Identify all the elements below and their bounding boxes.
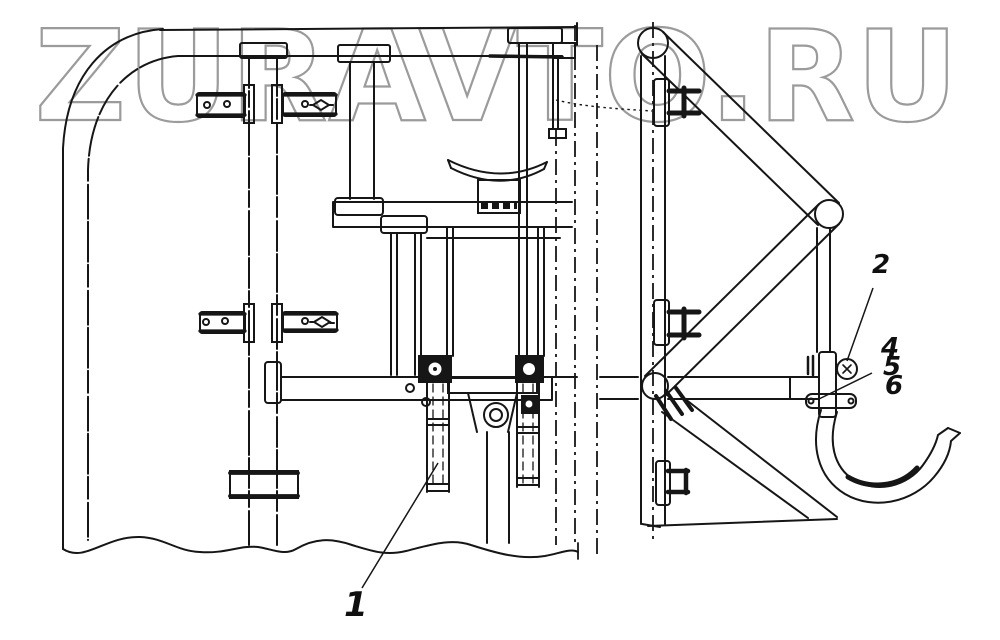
stay-triangle [648, 388, 837, 526]
break-line [63, 537, 578, 557]
mount-bolt [808, 356, 857, 379]
diagram-canvas: ZURAVTO.RU [0, 0, 1000, 640]
watermark-text: ZURAVTO.RU [35, 3, 960, 150]
lower-clamp [230, 471, 298, 498]
post-clamp-lower [656, 461, 688, 505]
diagonal-tube-lower [645, 204, 839, 396]
right-vertical-member [817, 228, 830, 352]
leader-5-6 [819, 373, 872, 399]
parts-diagram-page: ZURAVTO.RU [0, 0, 1000, 640]
spare-wheel-hook [816, 410, 960, 503]
watermark: ZURAVTO.RU [35, 3, 960, 150]
post-clamp-middle [654, 300, 699, 345]
carrier-arm [668, 377, 818, 399]
spare-wheel-saddle [448, 160, 547, 213]
callout-label-1: 1 [344, 588, 368, 622]
leader-1 [362, 463, 438, 588]
middle-cross-bracket [200, 304, 337, 342]
callout-label-2: 2 [872, 252, 890, 278]
arm-stub [600, 377, 638, 399]
callout-label-6: 6 [885, 373, 903, 399]
support-verticals [391, 227, 544, 375]
hook-clamp-strip [806, 394, 856, 408]
leader-2 [847, 288, 873, 361]
